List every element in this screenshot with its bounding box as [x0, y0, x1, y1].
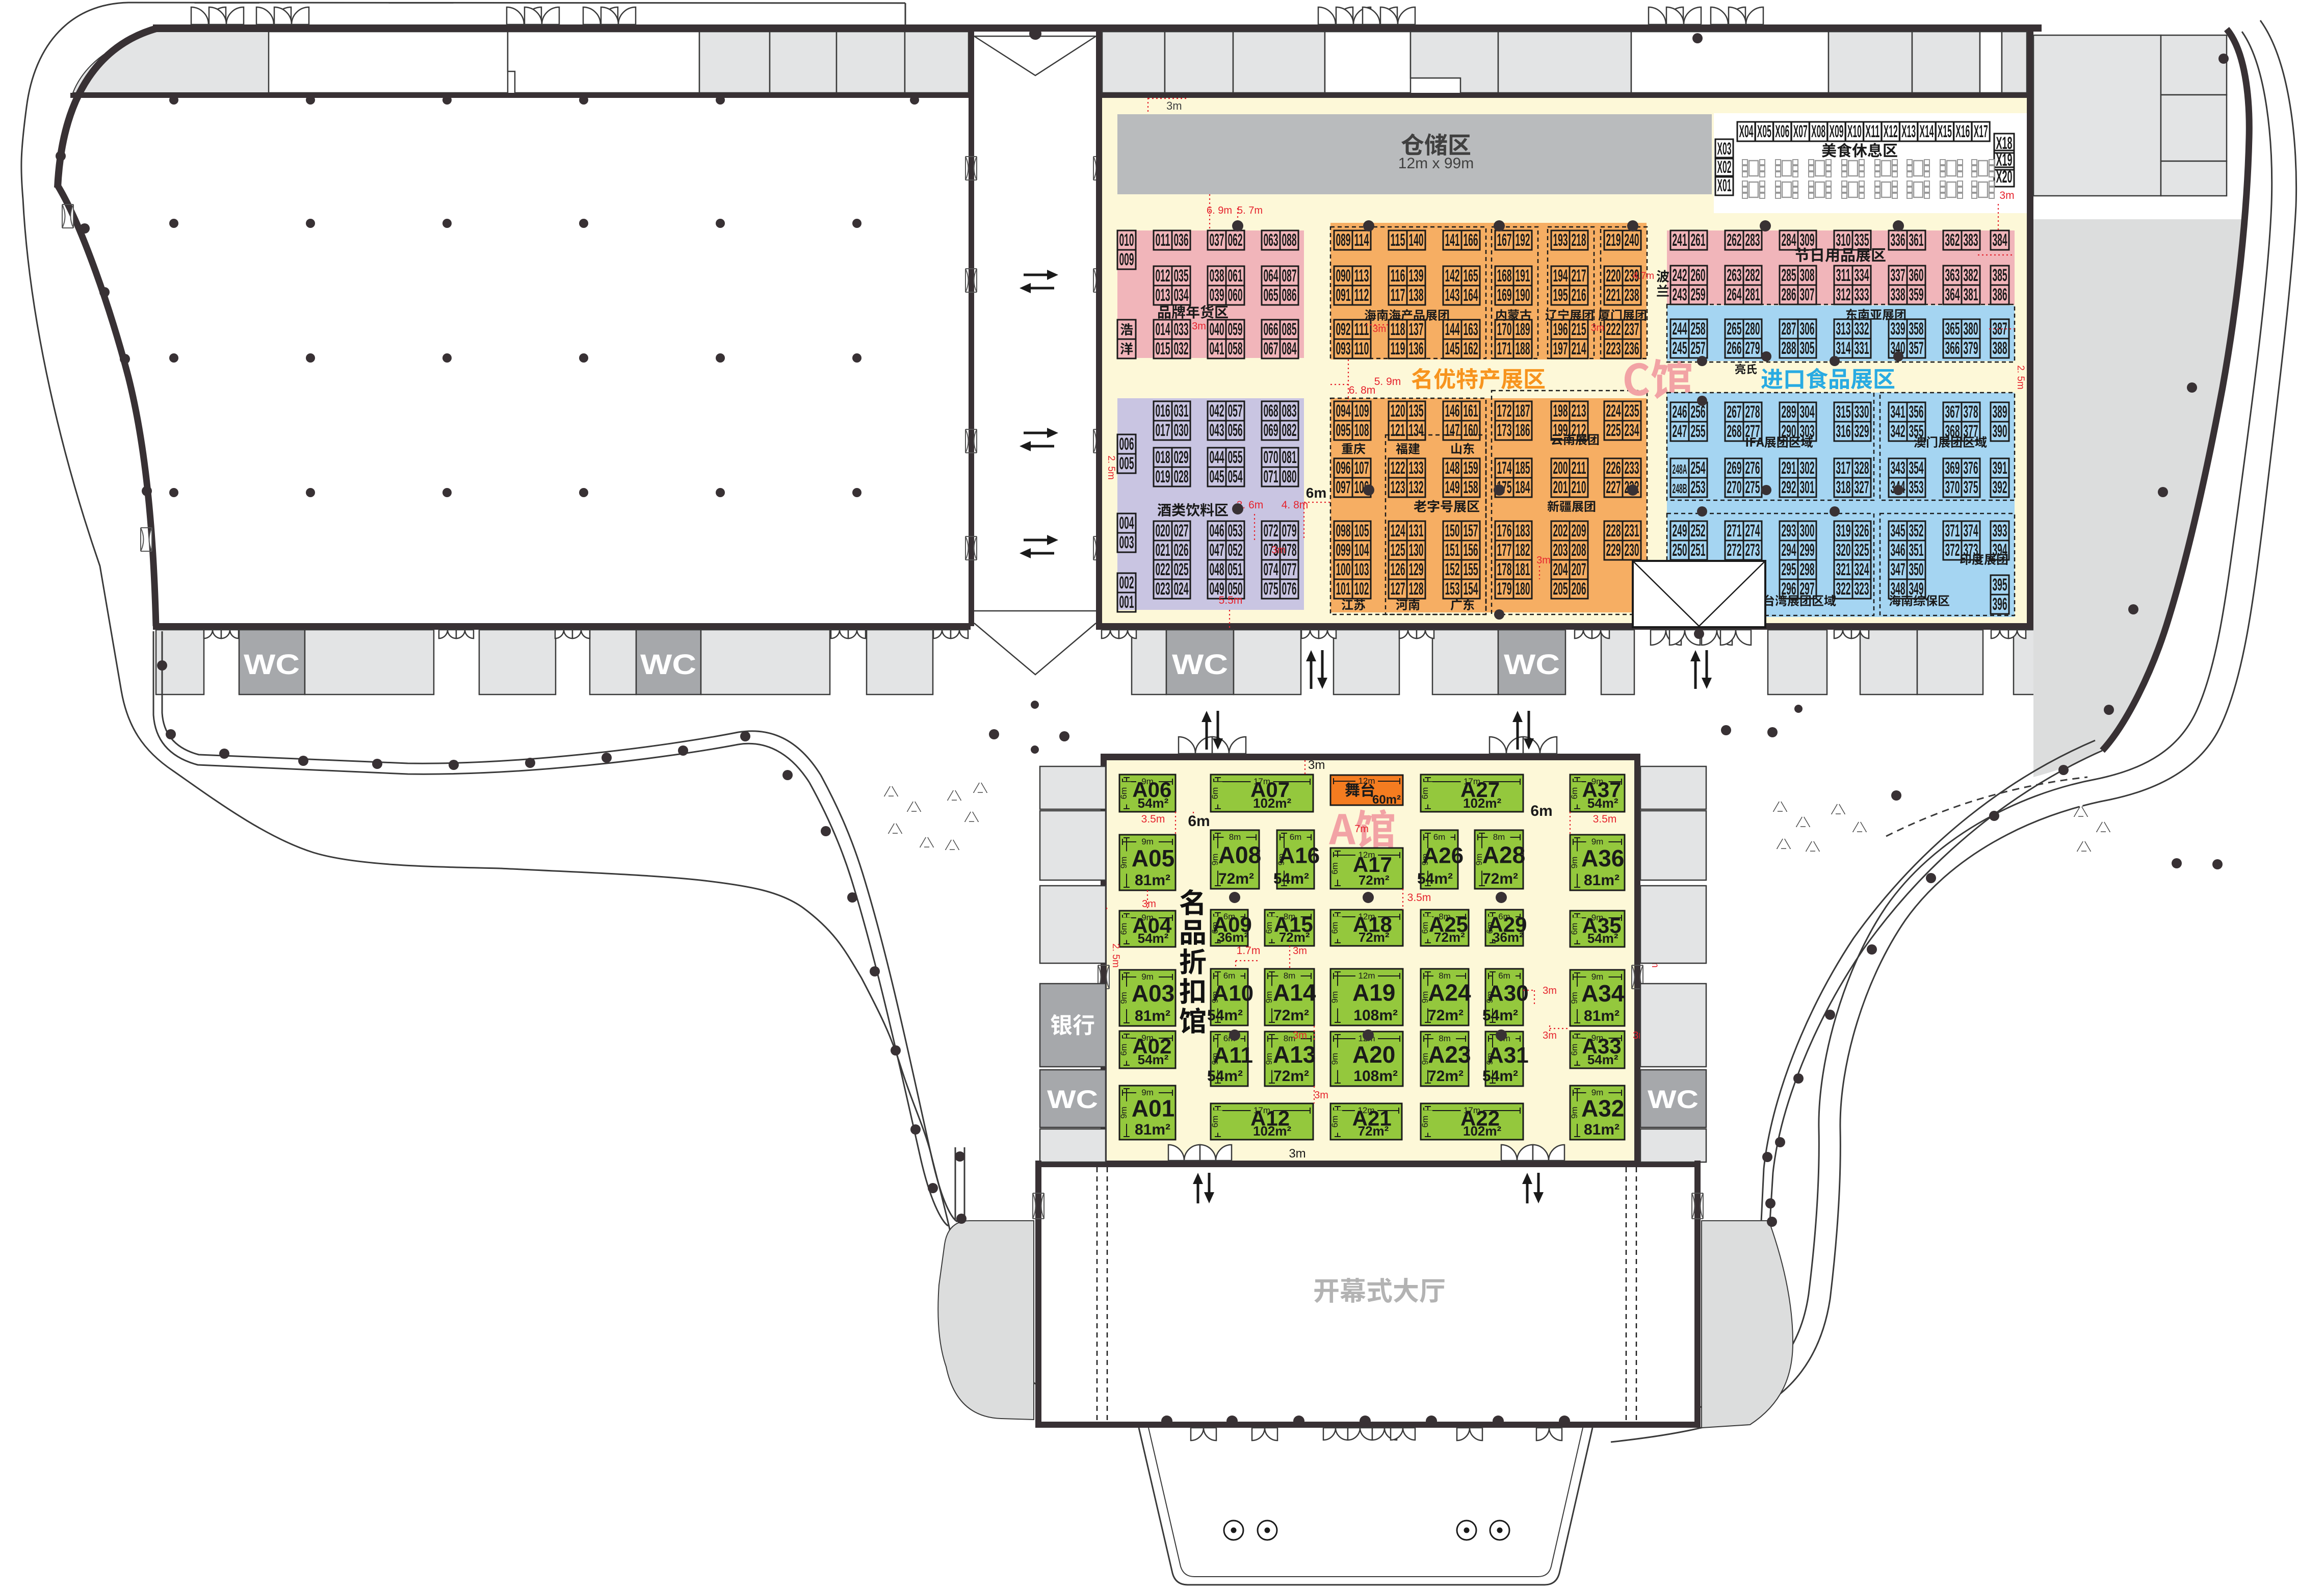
svg-text:54m²: 54m²	[1482, 1007, 1518, 1024]
svg-text:328: 328	[1855, 458, 1869, 478]
svg-text:3m: 3m	[1536, 555, 1551, 566]
svg-text:391: 391	[1993, 458, 2007, 478]
svg-text:209: 209	[1572, 521, 1586, 541]
svg-text:286: 286	[1782, 285, 1796, 304]
svg-text:114: 114	[1354, 230, 1369, 250]
svg-text:029: 029	[1174, 448, 1189, 467]
svg-text:6m: 6m	[1119, 923, 1129, 935]
svg-text:187: 187	[1516, 401, 1530, 421]
svg-text:54m²: 54m²	[1138, 1052, 1169, 1067]
svg-text:019: 019	[1156, 467, 1170, 486]
svg-text:159: 159	[1464, 458, 1478, 478]
svg-text:9m: 9m	[1570, 992, 1579, 1004]
svg-text:002: 002	[1119, 573, 1134, 593]
svg-text:6m: 6m	[1420, 1116, 1430, 1128]
svg-text:262: 262	[1727, 230, 1742, 250]
svg-text:A11: A11	[1213, 1043, 1253, 1068]
svg-text:393: 393	[1993, 521, 2007, 541]
svg-text:X04: X04	[1739, 122, 1754, 141]
svg-text:238: 238	[1625, 286, 1639, 305]
svg-text:X08: X08	[1811, 122, 1825, 141]
svg-text:107: 107	[1354, 458, 1369, 478]
svg-text:A08: A08	[1218, 841, 1261, 868]
svg-text:193: 193	[1553, 230, 1568, 250]
svg-text:X14: X14	[1920, 122, 1934, 141]
svg-text:124: 124	[1391, 521, 1405, 541]
svg-text:027: 027	[1174, 521, 1189, 541]
svg-text:269: 269	[1727, 458, 1742, 478]
svg-text:104: 104	[1354, 541, 1369, 560]
svg-text:171: 171	[1497, 339, 1512, 358]
svg-text:048: 048	[1210, 560, 1224, 579]
svg-text:3m: 3m	[1166, 99, 1182, 112]
svg-text:249: 249	[1673, 521, 1687, 541]
svg-text:253: 253	[1691, 478, 1706, 497]
svg-text:076: 076	[1282, 579, 1297, 599]
svg-text:5. 7m: 5. 7m	[1237, 205, 1263, 216]
svg-text:72m²: 72m²	[1218, 870, 1254, 887]
svg-text:180: 180	[1516, 579, 1530, 599]
svg-text:6m: 6m	[1210, 1116, 1220, 1128]
svg-text:WC: WC	[1648, 1085, 1699, 1114]
svg-text:259: 259	[1691, 285, 1706, 304]
svg-text:041: 041	[1210, 339, 1224, 358]
svg-text:216: 216	[1572, 286, 1586, 305]
svg-text:218: 218	[1572, 230, 1586, 250]
svg-text:285: 285	[1782, 266, 1796, 285]
svg-text:X12: X12	[1884, 122, 1898, 141]
svg-text:079: 079	[1282, 521, 1297, 541]
svg-text:72m²: 72m²	[1273, 1007, 1309, 1024]
svg-text:170: 170	[1497, 320, 1512, 339]
svg-text:X05: X05	[1757, 122, 1771, 141]
svg-text:191: 191	[1516, 266, 1530, 286]
svg-text:3.5m: 3.5m	[1407, 892, 1431, 904]
svg-text:345: 345	[1891, 521, 1905, 541]
svg-text:059: 059	[1228, 320, 1243, 339]
svg-text:108m²: 108m²	[1353, 1068, 1398, 1085]
svg-text:36m²: 36m²	[1493, 930, 1524, 945]
svg-text:184: 184	[1516, 478, 1530, 497]
svg-text:12m x 99m: 12m x 99m	[1398, 155, 1474, 172]
svg-text:172: 172	[1497, 401, 1512, 421]
svg-text:A13: A13	[1273, 1041, 1316, 1068]
svg-text:306: 306	[1800, 319, 1815, 339]
svg-text:096: 096	[1336, 458, 1351, 478]
svg-text:202: 202	[1553, 521, 1568, 541]
svg-text:207: 207	[1572, 560, 1586, 579]
svg-text:6m: 6m	[1420, 787, 1430, 800]
svg-text:X16: X16	[1955, 122, 1970, 141]
svg-text:356: 356	[1909, 402, 1924, 422]
svg-text:3m: 3m	[1192, 321, 1206, 332]
svg-text:X01: X01	[1717, 176, 1732, 195]
svg-text:206: 206	[1572, 579, 1586, 599]
svg-text:153: 153	[1445, 579, 1460, 599]
svg-text:81m²: 81m²	[1135, 872, 1170, 889]
svg-text:364: 364	[1945, 285, 1960, 304]
svg-text:062: 062	[1228, 230, 1243, 250]
svg-text:365: 365	[1945, 319, 1960, 339]
svg-text:215: 215	[1572, 320, 1586, 339]
svg-text:115: 115	[1391, 230, 1405, 250]
svg-text:321: 321	[1836, 560, 1851, 579]
svg-text:X07: X07	[1793, 122, 1808, 141]
svg-text:242: 242	[1673, 266, 1687, 285]
svg-text:313: 313	[1836, 319, 1851, 339]
svg-text:233: 233	[1625, 458, 1639, 478]
svg-text:3m: 3m	[1142, 898, 1156, 910]
svg-text:143: 143	[1445, 286, 1460, 305]
svg-text:7m: 7m	[1354, 824, 1369, 835]
svg-text:327: 327	[1855, 478, 1869, 497]
svg-text:346: 346	[1891, 541, 1905, 560]
svg-text:288: 288	[1782, 339, 1796, 358]
svg-text:167: 167	[1497, 230, 1512, 250]
svg-text:046: 046	[1210, 521, 1224, 541]
svg-text:A10: A10	[1212, 981, 1254, 1006]
svg-text:130: 130	[1409, 541, 1424, 560]
svg-text:266: 266	[1727, 339, 1742, 358]
svg-text:053: 053	[1228, 521, 1243, 541]
svg-text:098: 098	[1336, 521, 1351, 541]
svg-text:141: 141	[1445, 230, 1460, 250]
svg-text:075: 075	[1264, 579, 1278, 599]
svg-text:295: 295	[1782, 560, 1796, 579]
svg-text:281: 281	[1745, 285, 1760, 304]
svg-text:302: 302	[1800, 458, 1815, 478]
svg-text:001: 001	[1119, 593, 1134, 612]
svg-text:301: 301	[1800, 478, 1815, 497]
svg-text:384: 384	[1993, 230, 2007, 250]
svg-text:343: 343	[1891, 458, 1905, 478]
svg-text:81m²: 81m²	[1135, 1121, 1170, 1138]
svg-text:003: 003	[1119, 533, 1134, 552]
svg-text:188: 188	[1516, 339, 1530, 358]
svg-text:338: 338	[1891, 285, 1905, 304]
svg-text:063: 063	[1264, 230, 1278, 250]
svg-text:263: 263	[1727, 266, 1742, 285]
svg-text:9m: 9m	[1119, 992, 1129, 1004]
svg-text:014: 014	[1156, 320, 1170, 339]
svg-text:54m²: 54m²	[1207, 1007, 1243, 1024]
svg-text:068: 068	[1264, 401, 1278, 421]
svg-text:081: 081	[1282, 448, 1297, 467]
svg-text:077: 077	[1282, 560, 1297, 579]
svg-text:5. 9m: 5. 9m	[1374, 376, 1401, 388]
svg-text:6m: 6m	[1433, 832, 1446, 842]
svg-text:044: 044	[1210, 448, 1224, 467]
svg-text:6m: 6m	[1306, 485, 1326, 501]
svg-text:034: 034	[1174, 286, 1189, 305]
svg-text:150: 150	[1445, 521, 1460, 541]
svg-text:045: 045	[1210, 467, 1224, 486]
svg-text:004: 004	[1119, 513, 1134, 533]
svg-text:258: 258	[1691, 319, 1706, 339]
svg-text:312: 312	[1836, 285, 1851, 304]
svg-text:011: 011	[1156, 230, 1170, 250]
svg-text:X06: X06	[1775, 122, 1789, 141]
svg-text:270: 270	[1727, 478, 1742, 497]
svg-text:6. 9m: 6. 9m	[1207, 205, 1232, 216]
svg-text:382: 382	[1964, 266, 1978, 285]
svg-text:325: 325	[1855, 541, 1869, 560]
svg-text:140: 140	[1409, 230, 1424, 250]
svg-text:319: 319	[1836, 521, 1851, 541]
svg-text:326: 326	[1855, 521, 1869, 541]
svg-text:058: 058	[1228, 339, 1243, 358]
svg-text:329: 329	[1855, 422, 1869, 441]
svg-text:3m: 3m	[1293, 945, 1307, 957]
svg-text:198: 198	[1553, 401, 1568, 421]
svg-text:385: 385	[1993, 266, 2007, 285]
svg-text:6m: 6m	[1119, 787, 1129, 800]
svg-text:81m²: 81m²	[1584, 872, 1620, 889]
svg-text:392: 392	[1993, 478, 2007, 497]
svg-text:260: 260	[1691, 266, 1706, 285]
svg-text:231: 231	[1625, 521, 1639, 541]
svg-text:108m²: 108m²	[1353, 1007, 1398, 1024]
svg-text:WC: WC	[1504, 648, 1560, 680]
svg-text:146: 146	[1445, 401, 1460, 421]
svg-text:224: 224	[1606, 401, 1621, 421]
svg-text:60m²: 60m²	[1372, 793, 1401, 807]
svg-text:205: 205	[1553, 579, 1568, 599]
svg-text:388: 388	[1993, 339, 2007, 358]
svg-text:166: 166	[1464, 230, 1478, 250]
svg-text:379: 379	[1964, 339, 1978, 358]
svg-text:035: 035	[1174, 266, 1189, 286]
svg-text:185: 185	[1516, 458, 1530, 478]
svg-text:174: 174	[1497, 458, 1512, 478]
svg-text:099: 099	[1336, 541, 1351, 560]
svg-text:A01: A01	[1132, 1095, 1174, 1122]
svg-text:101: 101	[1336, 579, 1351, 599]
svg-text:335: 335	[1855, 230, 1869, 250]
svg-text:236: 236	[1625, 339, 1639, 358]
svg-text:390: 390	[1993, 422, 2007, 441]
svg-text:6m: 6m	[1570, 1044, 1579, 1056]
svg-text:6m: 6m	[1188, 813, 1210, 830]
svg-text:125: 125	[1391, 541, 1405, 560]
svg-text:194: 194	[1553, 266, 1568, 286]
svg-text:247: 247	[1673, 422, 1687, 441]
svg-text:037: 037	[1210, 230, 1224, 250]
svg-text:183: 183	[1516, 521, 1530, 541]
svg-text:354: 354	[1909, 458, 1924, 478]
svg-text:271: 271	[1727, 521, 1742, 541]
svg-text:128: 128	[1409, 579, 1424, 599]
svg-text:320: 320	[1836, 541, 1851, 560]
svg-text:268: 268	[1727, 422, 1742, 441]
svg-text:342: 342	[1891, 422, 1905, 441]
svg-text:109: 109	[1354, 401, 1369, 421]
svg-text:119: 119	[1391, 339, 1405, 358]
svg-text:227: 227	[1606, 478, 1621, 497]
svg-text:179: 179	[1497, 579, 1512, 599]
svg-text:X10: X10	[1847, 122, 1862, 141]
svg-text:273: 273	[1745, 541, 1760, 560]
svg-text:094: 094	[1336, 401, 1351, 421]
svg-text:006: 006	[1119, 434, 1134, 454]
svg-text:289: 289	[1782, 402, 1796, 422]
svg-text:9m: 9m	[1119, 1107, 1129, 1119]
svg-text:055: 055	[1228, 448, 1243, 467]
svg-text:3m: 3m	[1543, 985, 1557, 996]
svg-text:348: 348	[1891, 579, 1905, 599]
svg-text:284: 284	[1782, 230, 1796, 250]
svg-text:147: 147	[1445, 421, 1460, 440]
svg-text:145: 145	[1445, 339, 1460, 358]
svg-text:358: 358	[1909, 319, 1924, 339]
svg-text:54m²: 54m²	[1587, 931, 1618, 946]
svg-text:080: 080	[1282, 467, 1297, 486]
svg-text:2. 5m: 2. 5m	[1106, 455, 1116, 480]
svg-text:3.5m: 3.5m	[1141, 813, 1165, 825]
svg-text:065: 065	[1264, 286, 1278, 305]
svg-text:352: 352	[1909, 521, 1924, 541]
svg-text:025: 025	[1174, 560, 1189, 579]
svg-text:363: 363	[1945, 266, 1960, 285]
svg-text:118: 118	[1391, 320, 1405, 339]
svg-text:72m²: 72m²	[1273, 1068, 1309, 1085]
svg-text:X03: X03	[1717, 139, 1732, 159]
svg-text:4.7m: 4.7m	[1633, 271, 1654, 281]
svg-text:375: 375	[1964, 478, 1978, 497]
svg-text:81m²: 81m²	[1584, 1008, 1620, 1024]
svg-text:160: 160	[1464, 421, 1478, 440]
svg-text:A20: A20	[1352, 1041, 1395, 1068]
svg-text:337: 337	[1891, 266, 1905, 285]
svg-text:237: 237	[1625, 320, 1639, 339]
svg-text:54m²: 54m²	[1587, 795, 1618, 811]
svg-text:9m: 9m	[1570, 857, 1579, 869]
svg-text:113: 113	[1354, 266, 1369, 286]
svg-text:217: 217	[1572, 266, 1586, 286]
svg-text:092: 092	[1336, 320, 1351, 339]
svg-text:235: 235	[1625, 401, 1639, 421]
svg-text:203: 203	[1553, 541, 1568, 560]
svg-text:083: 083	[1282, 401, 1297, 421]
svg-text:148: 148	[1445, 458, 1460, 478]
svg-text:A14: A14	[1273, 980, 1316, 1006]
svg-text:314: 314	[1836, 339, 1851, 358]
svg-text:380: 380	[1964, 319, 1978, 339]
svg-text:211: 211	[1572, 458, 1586, 478]
svg-text:X15: X15	[1938, 122, 1952, 141]
svg-text:090: 090	[1336, 266, 1351, 286]
svg-text:220: 220	[1606, 266, 1621, 286]
svg-text:108: 108	[1354, 421, 1369, 440]
svg-text:360: 360	[1909, 266, 1924, 285]
svg-text:A23: A23	[1428, 1041, 1471, 1068]
svg-text:072: 072	[1264, 521, 1278, 541]
svg-text:341: 341	[1891, 402, 1905, 422]
svg-text:155: 155	[1464, 560, 1478, 579]
svg-text:165: 165	[1464, 266, 1478, 286]
svg-text:228: 228	[1606, 521, 1621, 541]
svg-text:291: 291	[1782, 458, 1796, 478]
svg-text:255: 255	[1691, 422, 1706, 441]
svg-text:129: 129	[1409, 560, 1424, 579]
svg-text:186: 186	[1516, 421, 1530, 440]
svg-text:010: 010	[1119, 230, 1134, 250]
svg-text:9m: 9m	[1330, 1053, 1340, 1065]
svg-text:330: 330	[1855, 402, 1869, 422]
svg-text:254: 254	[1691, 458, 1706, 478]
svg-text:251: 251	[1691, 541, 1706, 560]
svg-text:033: 033	[1174, 320, 1189, 339]
svg-text:261: 261	[1691, 230, 1706, 250]
svg-text:057: 057	[1228, 401, 1243, 421]
svg-text:250: 250	[1673, 541, 1687, 560]
svg-text:248B: 248B	[1673, 481, 1687, 496]
svg-text:72m²: 72m²	[1279, 930, 1310, 945]
svg-text:248A: 248A	[1673, 461, 1687, 477]
svg-text:333: 333	[1855, 285, 1869, 304]
svg-text:381: 381	[1964, 285, 1978, 304]
svg-text:134: 134	[1409, 421, 1424, 440]
svg-text:093: 093	[1336, 339, 1351, 358]
svg-text:54m²: 54m²	[1417, 870, 1453, 887]
svg-text:72m²: 72m²	[1358, 1123, 1389, 1139]
svg-text:278: 278	[1745, 402, 1760, 422]
svg-text:047: 047	[1210, 541, 1224, 560]
svg-text:383: 383	[1964, 230, 1978, 250]
svg-text:139: 139	[1409, 266, 1424, 286]
svg-text:36m²: 36m²	[1217, 930, 1248, 945]
svg-text:308: 308	[1800, 266, 1815, 285]
svg-text:376: 376	[1964, 458, 1978, 478]
svg-text:031: 031	[1174, 401, 1189, 421]
svg-text:378: 378	[1964, 402, 1978, 422]
svg-text:370: 370	[1945, 478, 1960, 497]
svg-text:102m²: 102m²	[1253, 795, 1291, 811]
svg-text:357: 357	[1909, 339, 1924, 358]
svg-text:026: 026	[1174, 541, 1189, 560]
svg-text:064: 064	[1264, 266, 1278, 286]
svg-text:299: 299	[1800, 541, 1815, 560]
svg-text:154: 154	[1464, 579, 1478, 599]
svg-text:127: 127	[1391, 579, 1405, 599]
svg-text:013: 013	[1156, 286, 1170, 305]
svg-text:3m: 3m	[1373, 324, 1386, 335]
svg-text:294: 294	[1782, 541, 1796, 560]
svg-text:395: 395	[1993, 575, 2007, 595]
svg-text:X02: X02	[1717, 158, 1732, 177]
svg-text:272: 272	[1727, 541, 1742, 560]
svg-text:396: 396	[1993, 595, 2007, 614]
svg-text:070: 070	[1264, 448, 1278, 467]
svg-text:A30: A30	[1487, 981, 1529, 1006]
svg-text:018: 018	[1156, 448, 1170, 467]
svg-text:367: 367	[1945, 402, 1960, 422]
svg-text:085: 085	[1282, 320, 1297, 339]
svg-text:287: 287	[1782, 319, 1796, 339]
svg-text:200: 200	[1553, 458, 1568, 478]
svg-text:X20: X20	[1996, 167, 2013, 187]
svg-text:135: 135	[1409, 401, 1424, 421]
svg-text:052: 052	[1228, 541, 1243, 560]
svg-text:138: 138	[1409, 286, 1424, 305]
svg-text:282: 282	[1745, 266, 1760, 285]
svg-text:WC: WC	[1047, 1085, 1098, 1114]
svg-text:051: 051	[1228, 560, 1243, 579]
svg-text:X09: X09	[1830, 122, 1844, 141]
svg-text:A19: A19	[1352, 980, 1395, 1006]
svg-text:347: 347	[1891, 560, 1905, 579]
svg-text:3m: 3m	[1999, 190, 2014, 201]
